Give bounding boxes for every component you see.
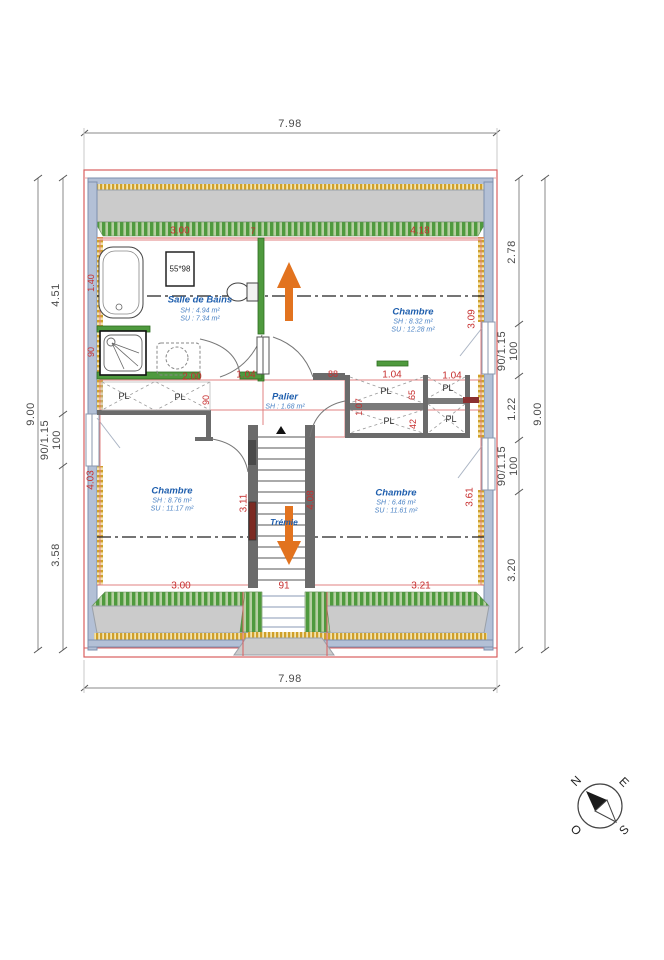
closet-label-pl1: PL <box>118 391 129 401</box>
dim-right-window1: 90/1.15 100 <box>496 331 520 371</box>
room-label-chambre-tr: Chambre <box>392 307 433 318</box>
room-area-palier-sh: SH : 1.68 m² <box>265 404 304 411</box>
stair-bump <box>234 588 334 656</box>
room-area-chambre-bl-sh: SH : 8.76 m² <box>152 498 191 505</box>
window-right-top <box>460 322 495 374</box>
room-area-chambre-br-su: SU : 11.61 m² <box>375 508 418 515</box>
arrow-up <box>285 287 293 321</box>
dim-left-seg2: 3.58 <box>50 543 62 566</box>
red-dim-chambre-br-height: 3.61 <box>465 487 476 506</box>
red-dim-door-width: 90 <box>201 395 211 405</box>
room-label-chambre-br: Chambre <box>375 488 416 499</box>
red-dim-stair-left: 3.11 <box>239 494 250 513</box>
red-dim-closet-left-width: 2.00 <box>182 372 201 383</box>
room-label-chambre-bl: Chambre <box>151 486 192 497</box>
red-dim-closet-r1-width: 1.04 <box>382 370 401 381</box>
red-dim-chambre-bl-height: 4.03 <box>86 470 97 489</box>
red-dim-closet-r2-width: 1.04 <box>442 371 461 382</box>
room-area-chambre-tr-su: SU : 12.28 m² <box>391 327 434 334</box>
window-left <box>86 414 120 466</box>
dim-left-window-size: 90/1.15 <box>39 420 51 460</box>
dim-right-window2-size: 90/1.15 <box>496 446 508 486</box>
room-area-chambre-bl-su: SU : 11.17 m² <box>151 506 194 513</box>
closet-label-pl4: PL <box>383 416 394 426</box>
red-dim-chambre-tr-height: 3.09 <box>467 309 478 328</box>
window-note-label: 55*98 <box>170 265 191 274</box>
vanity <box>157 343 200 375</box>
floor-plan-drawing <box>0 0 664 960</box>
dim-bottom-width: 7.98 <box>278 673 301 685</box>
red-dim-tub-length: 1.40 <box>86 274 96 292</box>
red-dim-closet-depth3: 1.07 <box>354 398 364 416</box>
floor-plan-page: 7.98 7.98 9.00 4.51 90/1.15 100 3.58 9.0… <box>0 0 664 960</box>
red-dim-stair-right: 4.08 <box>306 490 317 509</box>
dim-left-total: 9.00 <box>25 402 37 425</box>
room-area-bath-su: SU : 7.34 m² <box>180 316 219 323</box>
dim-right-window1-size: 90/1.15 <box>496 331 508 371</box>
dim-left-window: 90/1.15 100 <box>39 420 63 460</box>
dim-right-window2: 90/1.15 100 <box>496 446 520 486</box>
red-dim-closet-depth2: 42 <box>408 419 418 429</box>
closet-label-pl5: PL <box>442 383 453 393</box>
red-dim-closet-depth1: 65 <box>407 390 417 400</box>
closet-label-pl2: PL <box>174 392 185 402</box>
room-area-chambre-tr-sh: SH : 8.32 m² <box>393 319 432 326</box>
room-area-chambre-br-sh: SH : 6.46 m² <box>376 500 415 507</box>
red-dim-stair-width: 91 <box>278 581 289 592</box>
red-dim-wall-thickness: 7 <box>250 226 255 236</box>
closet-label-pl3: PL <box>380 386 391 396</box>
red-dim-chambre-tr-width: 4.18 <box>410 226 429 237</box>
red-dim-chambre-bl-width: 3.00 <box>171 581 190 592</box>
room-label-palier: Palier <box>272 392 298 403</box>
red-dim-bath-door: 1.04 <box>236 370 255 381</box>
door-leaf-bottom <box>248 440 256 465</box>
room-area-bath-sh: SH : 4.94 m² <box>180 308 219 315</box>
room-label-bath: Salle de Bains <box>168 295 232 306</box>
red-dim-shower-length: 90 <box>86 347 96 357</box>
dim-right-window2-height: 100 <box>508 446 520 486</box>
shower <box>100 331 146 375</box>
red-dim-wall-segment: 88 <box>328 369 338 379</box>
red-dim-bath-width: 3.00 <box>170 226 189 237</box>
red-dim-chambre-br-width: 3.21 <box>411 581 430 592</box>
dim-right-seg2: 1.22 <box>506 397 518 420</box>
closet-label-pl6: PL <box>445 414 456 424</box>
dim-right-window1-height: 100 <box>508 331 520 371</box>
room-label-tremie: Trémie <box>270 517 298 527</box>
dim-right-seg1: 2.78 <box>506 240 518 263</box>
dim-left-window-height: 100 <box>51 420 63 460</box>
dim-right-seg3: 3.20 <box>506 558 518 581</box>
dim-top-width: 7.98 <box>278 118 301 130</box>
compass <box>578 784 622 828</box>
window-right-bottom <box>458 438 495 490</box>
stair-handrail <box>249 502 256 540</box>
dim-right-total: 9.00 <box>532 402 544 425</box>
dim-left-seg1: 4.51 <box>50 283 62 306</box>
